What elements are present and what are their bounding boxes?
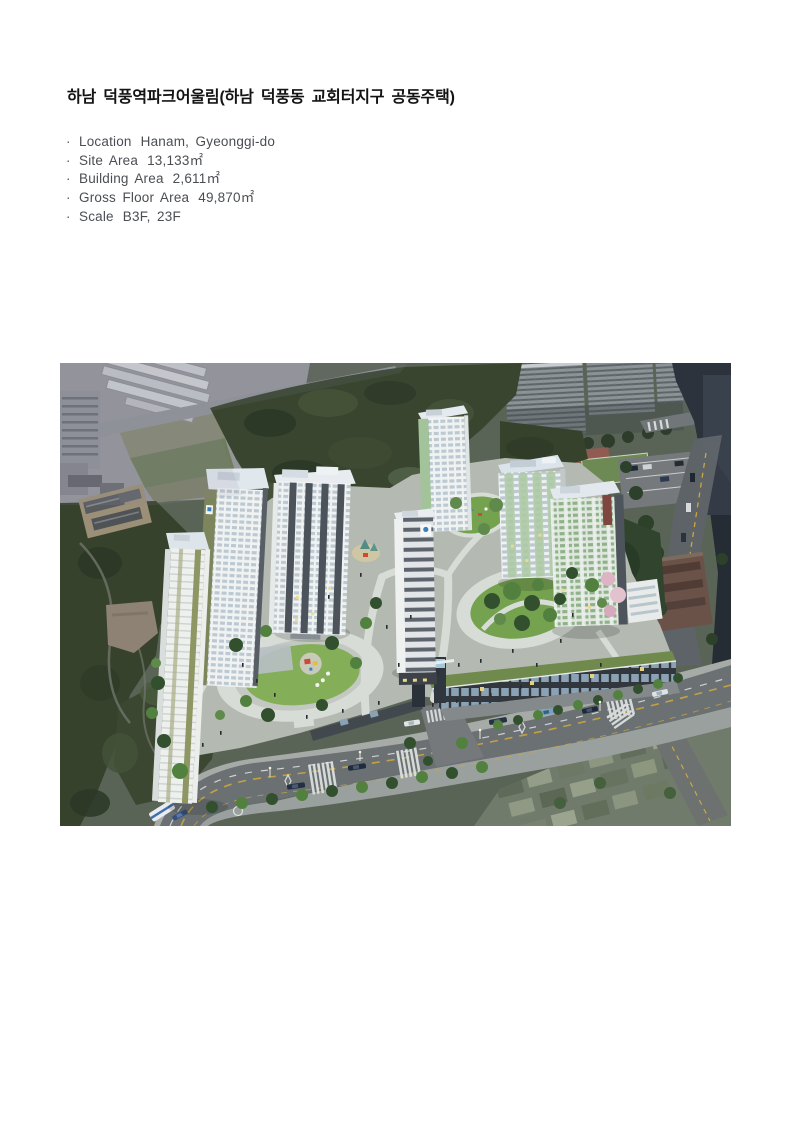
spec-value: B3F, 23F: [123, 209, 181, 224]
spec-item-location: ·LocationHanam, Gyeonggi-do: [66, 133, 275, 152]
bullet-glyph: ·: [66, 133, 79, 152]
bullet-glyph: ·: [66, 152, 79, 171]
tower-4: [394, 508, 439, 685]
page-title: 하남 덕풍역파크어울림(하남 덕풍동 교회터지구 공동주택): [67, 83, 455, 107]
spec-label: Location: [79, 134, 132, 149]
spec-label: Gross Floor Area: [79, 190, 189, 205]
spec-label: Scale: [79, 209, 114, 224]
tower-7: [550, 480, 628, 626]
spec-label: Site Area: [79, 153, 138, 168]
bullet-glyph: ·: [66, 170, 79, 189]
spec-item-building-area: ·Building Area2,611㎡: [66, 170, 275, 189]
bullet-glyph: ·: [66, 189, 79, 208]
spec-value: 2,611㎡: [173, 171, 220, 186]
document-page: 하남 덕풍역파크어울림(하남 덕풍동 교회터지구 공동주택) ·Location…: [0, 0, 793, 1121]
tower-3: [268, 465, 356, 641]
spec-list: ·LocationHanam, Gyeonggi-do ·Site Area13…: [66, 133, 275, 227]
spec-item-gross-floor-area: ·Gross Floor Area49,870㎡: [66, 189, 275, 208]
podium-upper-block: [623, 579, 662, 623]
bullet-glyph: ·: [66, 208, 79, 227]
spec-value: 13,133㎡: [147, 153, 203, 168]
spec-value: 49,870㎡: [198, 190, 254, 205]
spec-item-site-area: ·Site Area13,133㎡: [66, 152, 275, 171]
project-rendering-image: [60, 363, 731, 826]
spec-value: Hanam, Gyeonggi-do: [141, 134, 275, 149]
spec-item-scale: ·ScaleB3F, 23F: [66, 208, 275, 227]
spec-label: Building Area: [79, 171, 164, 186]
